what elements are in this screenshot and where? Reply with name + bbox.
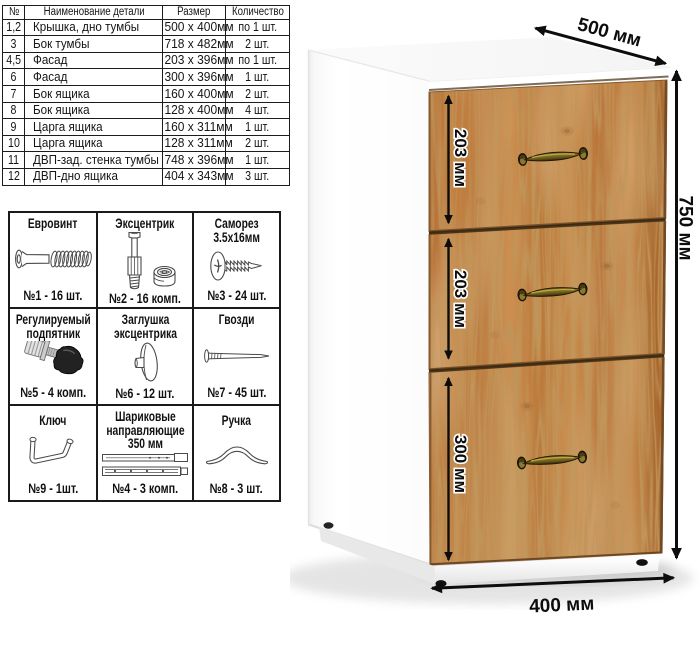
svg-text:400 мм: 400 мм [529,594,595,618]
svg-text:750 мм: 750 мм [675,195,696,260]
svg-text:203 мм: 203 мм [451,270,470,328]
svg-text:203 мм: 203 мм [451,129,470,187]
svg-text:300 мм: 300 мм [451,435,470,493]
